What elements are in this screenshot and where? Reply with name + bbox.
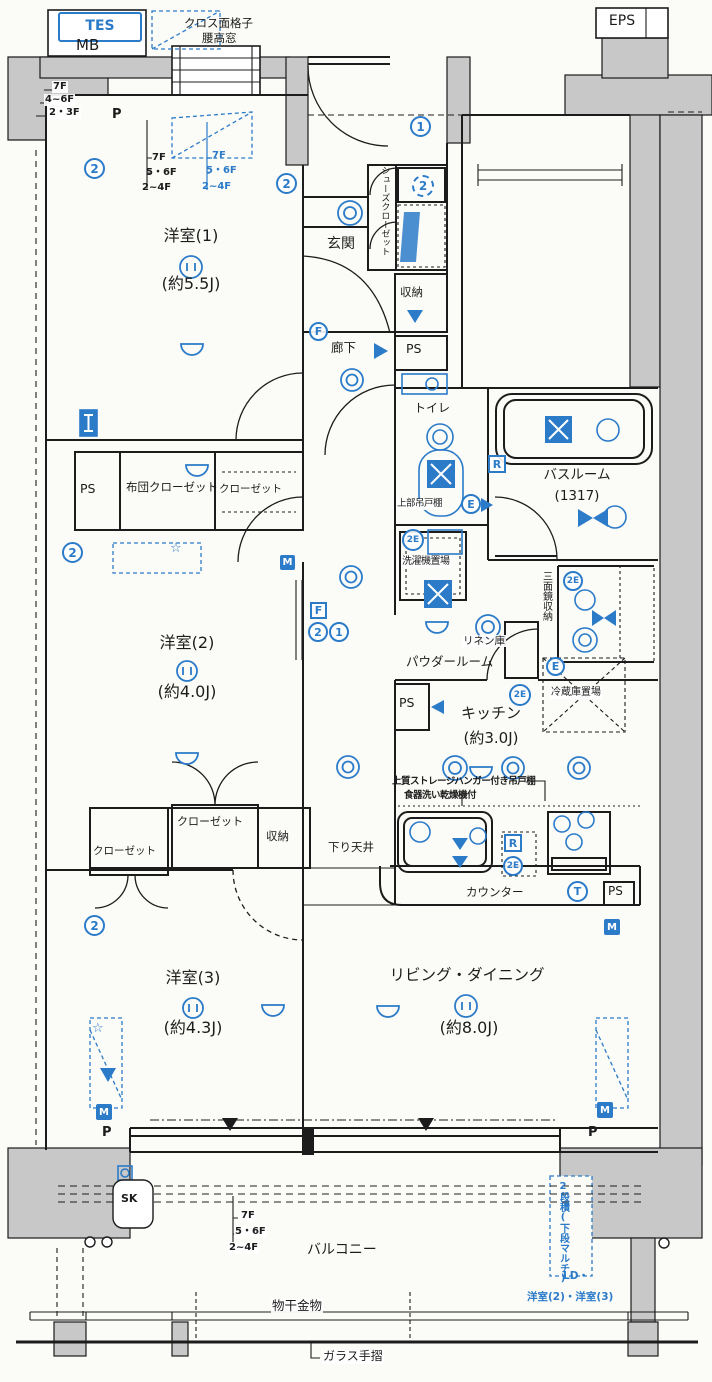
ceiling-light-icon — [340, 566, 362, 588]
closet-label: クローゼット — [93, 845, 156, 857]
linen-label: リネン庫 — [462, 635, 506, 647]
floor-note: 5・6F — [146, 167, 177, 179]
kitchen-note-line1: 上質ストレージハンガー付き吊戸棚 — [392, 777, 535, 788]
floor-note: 2~4F — [228, 1242, 259, 1254]
symbol-m-box: M — [96, 1104, 112, 1120]
symbol-2e-circle: 2E — [503, 856, 523, 876]
monohoshi-label: 物干金物 — [271, 1299, 323, 1313]
symbol-f-circle: F — [309, 322, 328, 341]
room-label-yoshitsu2: 洋室(2) — [143, 634, 231, 652]
symbol-2-circle: 2 — [84, 915, 105, 936]
room-size-bath: (1317) — [513, 489, 641, 505]
symbol-2-circle: 2 — [84, 158, 105, 179]
symbol-e-circle: E — [461, 494, 481, 514]
closet-label: クローゼット — [177, 816, 243, 829]
room-size-yoshitsu1: (約5.5J) — [143, 275, 239, 293]
ceiling-light-icon — [337, 756, 359, 778]
p-label-bottom-right: P — [588, 1126, 598, 1141]
ps-label-left: PS — [80, 482, 95, 496]
futon-closet-label: 布団クローゼット — [126, 481, 218, 494]
ps-label-counter: PS — [608, 885, 623, 899]
glass-rail-label: ガラス手摺 — [322, 1350, 384, 1364]
ceiling-light-icon — [341, 369, 363, 391]
symbol-e-circle: E — [546, 657, 565, 676]
closet-label: クローゼット — [219, 483, 282, 495]
star-symbol: ☆ — [170, 541, 182, 556]
mirror-cabinet-label: 三面鏡収納 — [540, 571, 552, 657]
symbol-m-box: M — [597, 1102, 613, 1118]
room-label-kitchen: キッチン — [448, 705, 534, 722]
sk-label: SK — [120, 1193, 138, 1206]
kitchen-note-line2: 食器洗い乾燥機付 — [404, 791, 476, 802]
room-size-yoshitsu2: (約4.0J) — [140, 683, 234, 701]
room-light-icon — [177, 661, 197, 681]
storage-label-yoshitsu2: 収納 — [266, 830, 289, 843]
symbol-r-box: R — [504, 834, 522, 852]
mb-label: MB — [76, 37, 99, 54]
upper-cabinet-note: 上部吊戸棚 — [396, 499, 443, 510]
room-size-kitchen: (約3.0J) — [442, 730, 540, 747]
floor-note: 2・3F — [48, 107, 81, 119]
p-label-top: P — [112, 108, 122, 123]
ac-ld-note: LD・ — [563, 1270, 589, 1282]
room-label-yoshitsu1: 洋室(1) — [146, 227, 236, 245]
symbol-2e-circle: 2E — [563, 571, 583, 591]
floor-note: 7F — [152, 152, 166, 164]
room-light-icon — [455, 995, 477, 1017]
room-size-yoshitsu3: (約4.3J) — [144, 1019, 242, 1037]
dropped-ceiling-label: 下り天井 — [328, 841, 374, 854]
symbol-2e-circle: 2E — [509, 684, 531, 706]
tes-badge: TES — [58, 12, 142, 42]
wall-light-icon — [426, 622, 448, 633]
counter-label: カウンター — [466, 886, 524, 899]
symbol-2-circle: 2 — [62, 542, 83, 563]
interior-walls — [46, 57, 658, 1154]
eps-label: EPS — [598, 13, 646, 29]
floor-note: 2~4F — [142, 182, 171, 194]
washer-label: 洗濯機置場 — [401, 556, 451, 568]
symbol-2-circle: 2 — [276, 173, 297, 194]
floor-note-blue: 2~4F — [202, 181, 231, 193]
symbol-1-circle: 1 — [329, 622, 349, 642]
symbol-r-box: R — [488, 455, 506, 473]
floor-plan-drawing — [0, 0, 712, 1382]
wall-light-icon — [377, 1006, 399, 1017]
grille-note-line2: 腰高窓 — [202, 32, 237, 45]
floor-plan: TES MB クロス面格子 腰高窓 EPS P P P 7F 4~6F 2・3F… — [0, 0, 712, 1382]
room-label-toilet: トイレ — [414, 402, 450, 416]
symbol-t-circle: T — [567, 881, 588, 902]
floor-note: 7F — [240, 1210, 256, 1222]
symbol-2-circle: 2 — [308, 622, 328, 642]
ac-stack-note: 2段積(下段マルチ) — [557, 1181, 569, 1273]
floor-note-blue: 5・6F — [206, 165, 237, 177]
fridge-label: 冷蔵庫置場 — [550, 687, 602, 699]
floor-note: 7F — [52, 81, 68, 93]
room-label-rouka: 廊下 — [331, 341, 356, 355]
p-label-bottom-left: P — [102, 1126, 112, 1141]
storage-label-genkan: 収納 — [400, 286, 423, 299]
symbol-m-box: M — [280, 555, 295, 570]
symbol-2e-circle: 2E — [402, 529, 424, 551]
ac-rooms-note: 洋室(2)・洋室(3) — [527, 1291, 613, 1303]
room-size-living: (約8.0J) — [421, 1019, 517, 1037]
room-label-genkan: 玄関 — [327, 236, 355, 252]
wall-light-icon — [181, 344, 203, 355]
symbol-2-circle-dashed: 2 — [412, 175, 434, 197]
floor-note-blue: 7F — [212, 150, 226, 162]
star-symbol: ☆ — [92, 1021, 104, 1036]
concrete-walls — [8, 38, 712, 1356]
wall-light-icon — [262, 1005, 284, 1016]
symbol-f-box: F — [310, 602, 327, 619]
shoes-closet-label: シューズクローゼット — [379, 166, 389, 268]
room-label-powder: パウダールーム — [406, 655, 493, 669]
wall-light-icon — [186, 465, 208, 476]
room-label-yoshitsu3: 洋室(3) — [148, 969, 238, 987]
room-light-icon — [183, 998, 203, 1018]
symbol-1-circle: 1 — [410, 116, 431, 137]
ceiling-light-icon — [338, 201, 362, 225]
grille-note-line1: クロス面格子 — [184, 17, 253, 30]
symbol-m-box: M — [604, 919, 620, 935]
balcony-label: バルコニー — [307, 1242, 377, 1258]
ps-label-kitchen: PS — [399, 696, 414, 710]
ceiling-light-icon — [568, 757, 590, 779]
room-label-bath: バスルーム — [513, 468, 641, 484]
room-label-living: リビング・ダイニング — [378, 967, 556, 985]
ps-label-genkan: PS — [406, 342, 421, 356]
floor-note: 4~6F — [44, 94, 75, 106]
floor-note: 5・6F — [234, 1226, 267, 1238]
